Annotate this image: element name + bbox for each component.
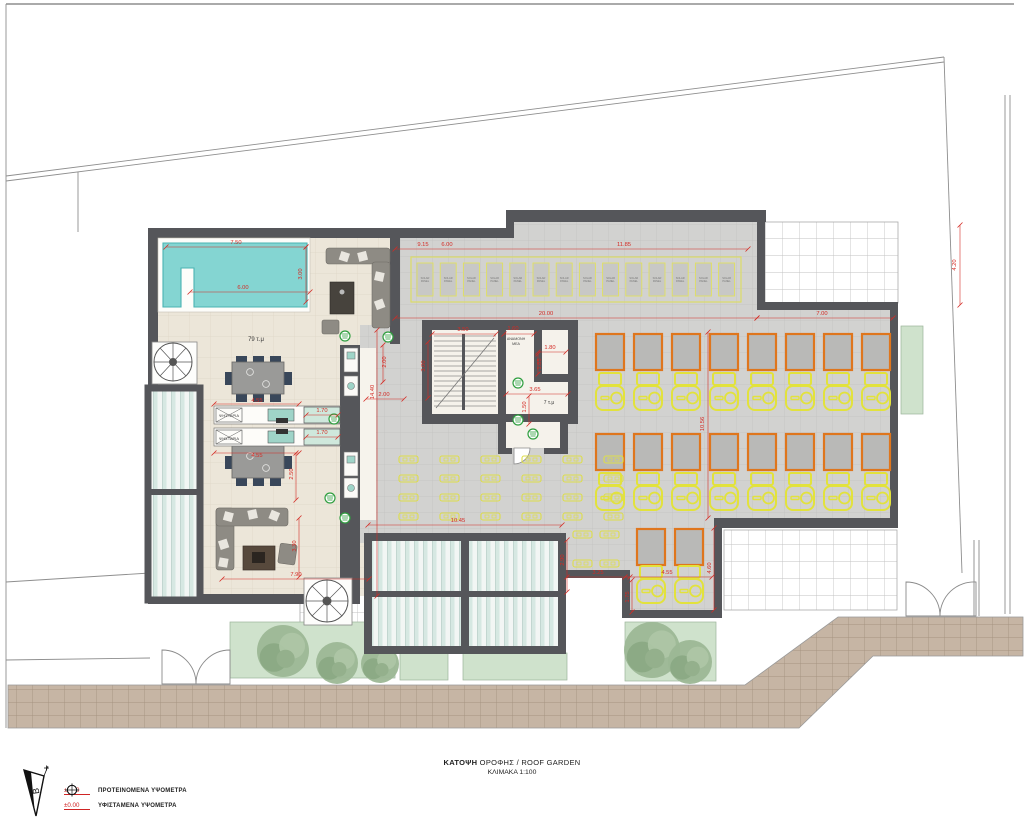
svg-text:3.00: 3.00	[298, 268, 304, 279]
svg-text:PANEL: PANEL	[653, 279, 662, 283]
drawing-sheet: SOLARPANELSOLARPANELSOLARPANELSOLARPANEL…	[0, 0, 1024, 832]
svg-text:7.90: 7.90	[290, 572, 301, 578]
svg-text:20.00: 20.00	[539, 311, 554, 317]
floor-drain-icon	[513, 415, 523, 425]
svg-text:PANEL: PANEL	[490, 279, 499, 283]
floor-drain-icon	[528, 429, 538, 439]
svg-text:2.00: 2.00	[382, 356, 388, 367]
floor-plan-drawing: SOLARPANELSOLARPANELSOLARPANELSOLARPANEL…	[0, 0, 1024, 832]
tv-console	[330, 282, 354, 314]
solar-panel: SOLARPANEL	[603, 263, 619, 296]
room-label: ΑΝΑΜΟΝΗ	[507, 337, 526, 341]
solar-panel: SOLARPANEL	[649, 263, 665, 296]
svg-text:9.15: 9.15	[417, 242, 428, 248]
solar-panel: SOLARPANEL	[533, 263, 549, 296]
svg-text:4.55: 4.55	[661, 570, 672, 576]
svg-text:PANEL: PANEL	[676, 279, 685, 283]
svg-text:3.50: 3.50	[457, 327, 468, 333]
legend-item-existing: ±0.00 ΥΦΙΣΤΑΜΕΝΑ ΥΨΟΜΕΤΡΑ	[64, 798, 187, 813]
elevation-legend: ±0.00 ΠΡΟΤΕΙΝΟΜΕΝΑ ΥΨΟΜΕΤΡΑ ±0.00 ΥΦΙΣΤΑ…	[64, 783, 187, 813]
dimension: 9.15	[417, 242, 428, 248]
floor-drain-icon	[513, 378, 523, 388]
svg-text:10.45: 10.45	[451, 518, 466, 524]
room-label: 7 τ.μ	[544, 400, 555, 406]
svg-text:PANEL: PANEL	[514, 279, 523, 283]
spiral-stair-bottom	[304, 578, 352, 625]
svg-text:1.80: 1.80	[544, 345, 555, 351]
solar-panel: SOLARPANEL	[417, 263, 433, 296]
svg-text:10.56: 10.56	[700, 417, 706, 432]
legend-value: ±0.00	[64, 802, 90, 810]
solar-panel: SOLARPANEL	[695, 263, 711, 296]
svg-text:PANEL: PANEL	[722, 279, 731, 283]
svg-text:2.90: 2.90	[560, 554, 566, 565]
solar-panel: SOLARPANEL	[440, 263, 456, 296]
svg-text:2.00: 2.00	[378, 392, 389, 398]
north-arrow: Β	[24, 766, 49, 817]
svg-text:4.20: 4.20	[952, 259, 958, 270]
pergola-bottom	[368, 537, 562, 650]
floor-drain-icon	[325, 493, 335, 503]
existing-elevation-icon	[64, 783, 86, 797]
solar-panel: SOLARPANEL	[463, 263, 479, 296]
svg-text:3.30: 3.30	[292, 540, 298, 551]
svg-text:14.40: 14.40	[370, 385, 376, 400]
solar-panel: SOLARPANEL	[719, 263, 735, 296]
floor-drain-icon	[340, 513, 350, 523]
svg-text:PANEL: PANEL	[560, 279, 569, 283]
tree	[257, 625, 309, 677]
dimension: 4.20	[952, 223, 963, 308]
svg-text:7.00: 7.00	[816, 311, 827, 317]
svg-text:PANEL: PANEL	[444, 279, 453, 283]
svg-text:3.25: 3.25	[592, 570, 603, 576]
solar-panel: SOLARPANEL	[672, 263, 688, 296]
legend-label: ΠΡΟΤΕΙΝΟΜΕΝΑ ΥΨΟΜΕΤΡΑ	[98, 788, 187, 794]
svg-text:4.55: 4.55	[251, 398, 262, 404]
svg-text:6.00: 6.00	[237, 285, 248, 291]
svg-text:PANEL: PANEL	[421, 279, 430, 283]
svg-text:1.70: 1.70	[316, 430, 327, 436]
svg-text:1.70: 1.70	[316, 408, 327, 414]
dimension: 11.85	[617, 242, 631, 248]
svg-text:3.65: 3.65	[529, 387, 540, 393]
svg-text:PANEL: PANEL	[606, 279, 615, 283]
svg-text:3.00: 3.00	[421, 360, 427, 371]
swimming-pool	[158, 238, 310, 312]
svg-text:2.50: 2.50	[289, 468, 295, 479]
svg-text:PANEL: PANEL	[583, 279, 592, 283]
svg-text:1.85: 1.85	[537, 358, 543, 369]
solar-panel: SOLARPANEL	[626, 263, 642, 296]
svg-text:PANEL: PANEL	[467, 279, 476, 283]
drawing-title: ΚΑΤΟΨΗ ΟΡΟΦΗΣ / ROOF GARDEN	[362, 758, 662, 767]
solar-panel: SOLARPANEL	[556, 263, 572, 296]
svg-text:7.50: 7.50	[230, 240, 241, 246]
svg-text:4.60: 4.60	[707, 562, 713, 573]
pergola-left	[148, 388, 200, 600]
floor-drain-icon	[340, 331, 350, 341]
svg-text:1.60: 1.60	[507, 326, 518, 332]
svg-text:11.85: 11.85	[617, 242, 631, 248]
svg-text:4.55: 4.55	[251, 453, 262, 459]
room-label: ΨΗΣΤΑΡΙΑ	[219, 436, 239, 441]
solar-panel: SOLARPANEL	[510, 263, 526, 296]
tree	[668, 640, 712, 684]
solar-panel: SOLARPANEL	[487, 263, 503, 296]
svg-text:6.00: 6.00	[441, 242, 452, 248]
svg-text:1.50: 1.50	[522, 401, 528, 412]
room-label: ΜΕΑ	[512, 342, 520, 346]
solar-panel: SOLARPANEL	[579, 263, 595, 296]
drawing-scale: ΚΛΙΜΑΚΑ 1:100	[362, 769, 662, 776]
svg-text:PANEL: PANEL	[537, 279, 546, 283]
svg-text:PANEL: PANEL	[699, 279, 708, 283]
spiral-stair-top	[152, 342, 197, 384]
floor-drain-icon	[383, 332, 393, 342]
svg-text:PANEL: PANEL	[630, 279, 639, 283]
tree	[316, 642, 358, 684]
room-label: ΨΗΣΤΑΡΙΑ	[219, 413, 239, 418]
room-label: 79 τ.μ	[248, 337, 264, 343]
title-block: ΚΑΤΟΨΗ ΟΡΟΦΗΣ / ROOF GARDEN ΚΛΙΜΑΚΑ 1:10…	[362, 758, 662, 776]
legend-label: ΥΦΙΣΤΑΜΕΝΑ ΥΨΟΜΕΤΡΑ	[98, 803, 177, 809]
svg-text:1.75: 1.75	[625, 591, 631, 602]
